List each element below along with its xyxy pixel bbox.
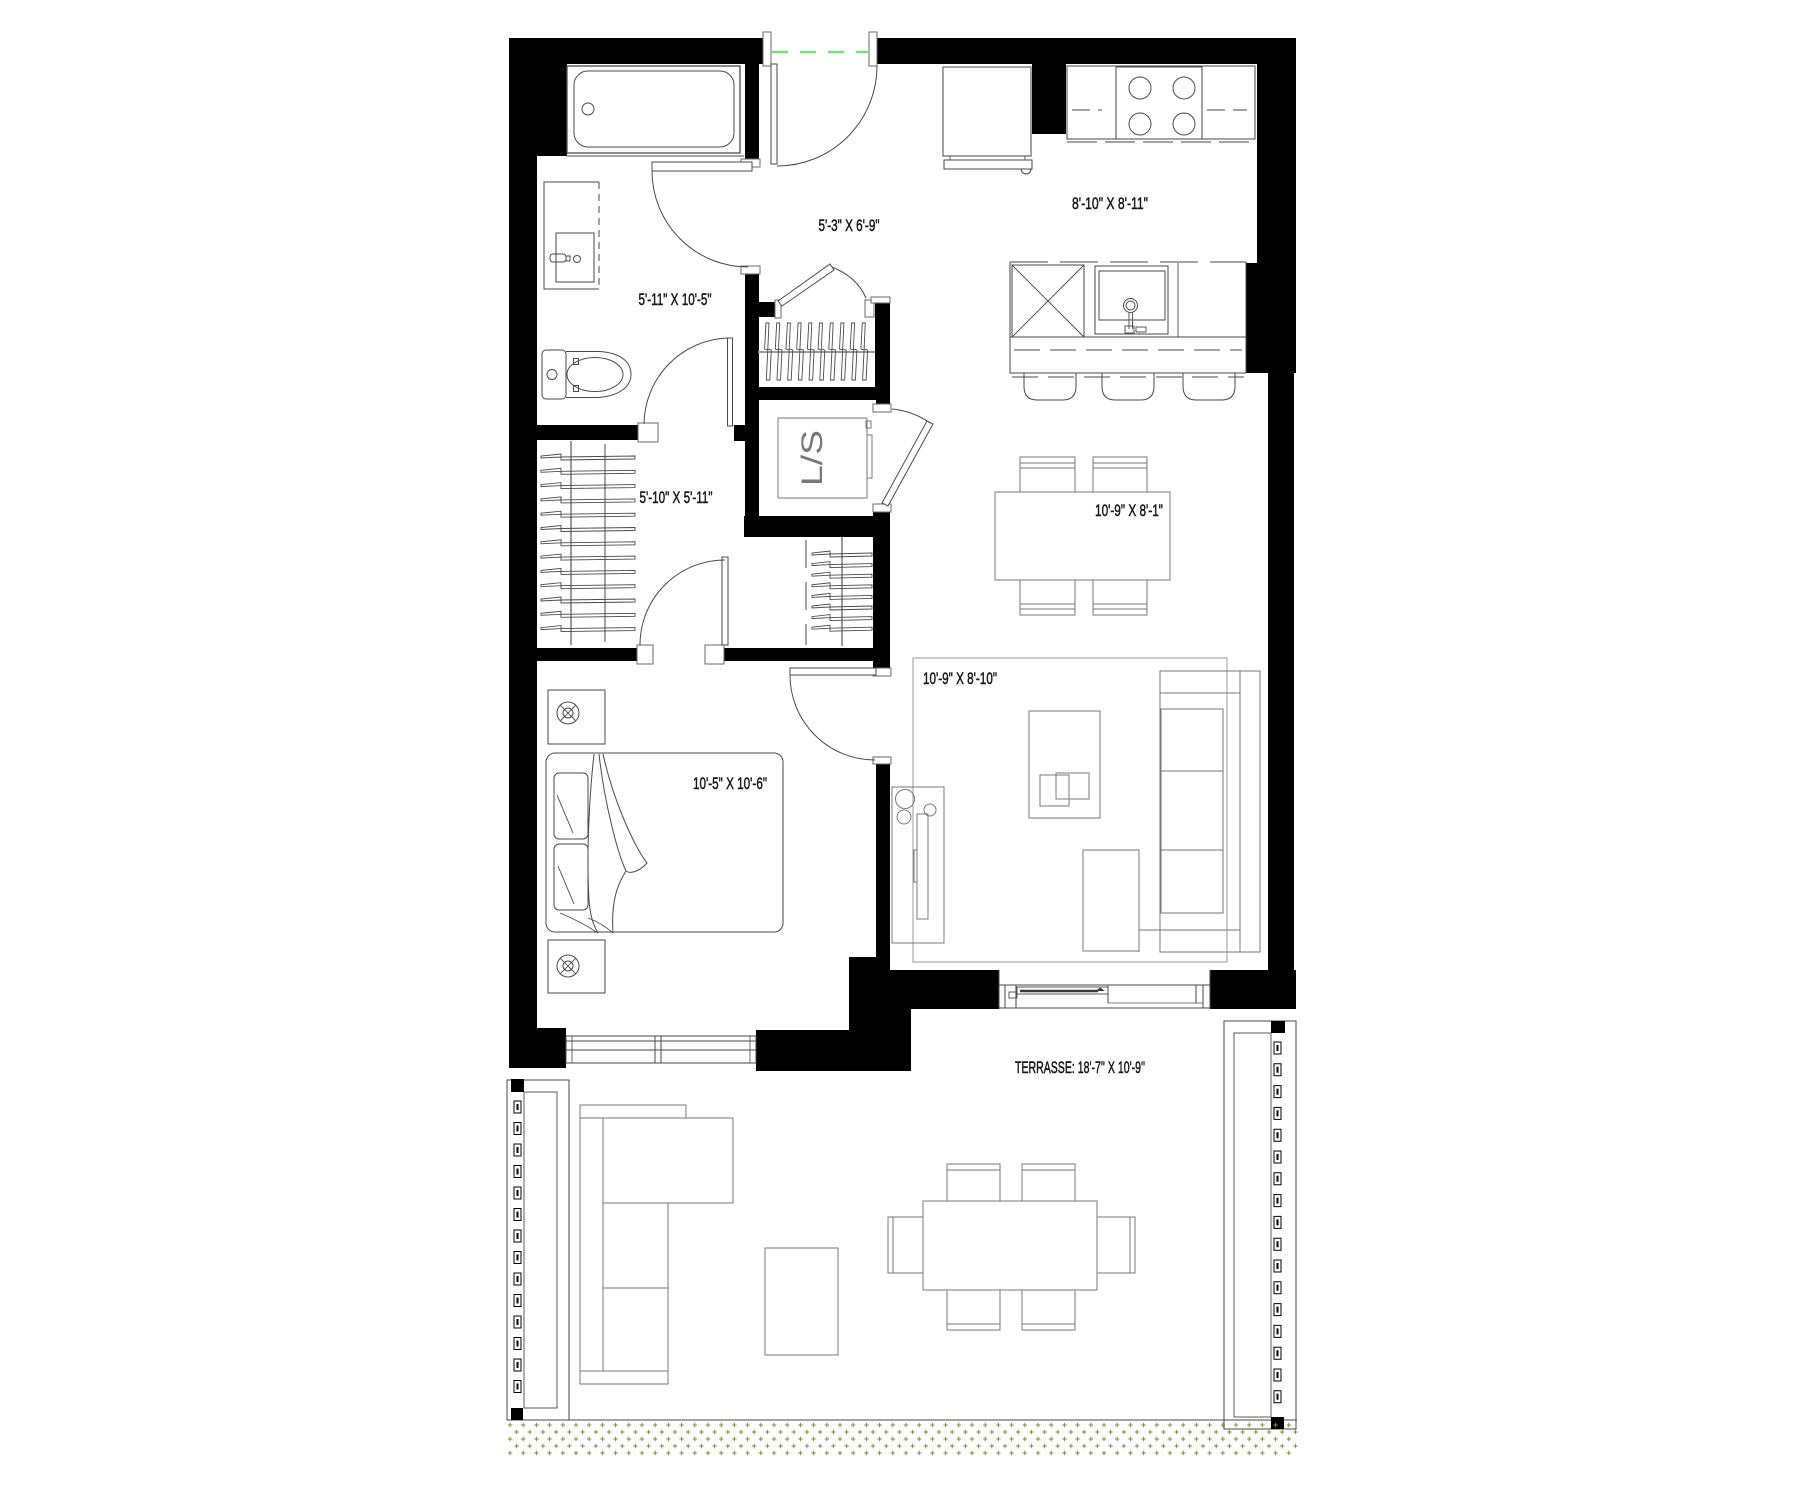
svg-text:8'-10" X 8'-11": 8'-10" X 8'-11"	[1072, 195, 1148, 213]
svg-text:10'-9" X 8'-10": 10'-9" X 8'-10"	[923, 670, 997, 688]
svg-text:10'-5" X 10'-6": 10'-5" X 10'-6"	[693, 775, 767, 793]
svg-text:5'-10" X 5'-11": 5'-10" X 5'-11"	[640, 489, 713, 507]
svg-text:10'-9" X 8'-1": 10'-9" X 8'-1"	[1095, 502, 1163, 520]
svg-text:5'-3" X 6'-9": 5'-3" X 6'-9"	[819, 217, 880, 235]
svg-text:L/S: L/S	[796, 430, 829, 486]
svg-text:TERRASSE: 18'-7'' X 10'-9'': TERRASSE: 18'-7'' X 10'-9''	[1015, 1059, 1145, 1077]
svg-text:5'-11" X 10'-5": 5'-11" X 10'-5"	[639, 291, 712, 309]
